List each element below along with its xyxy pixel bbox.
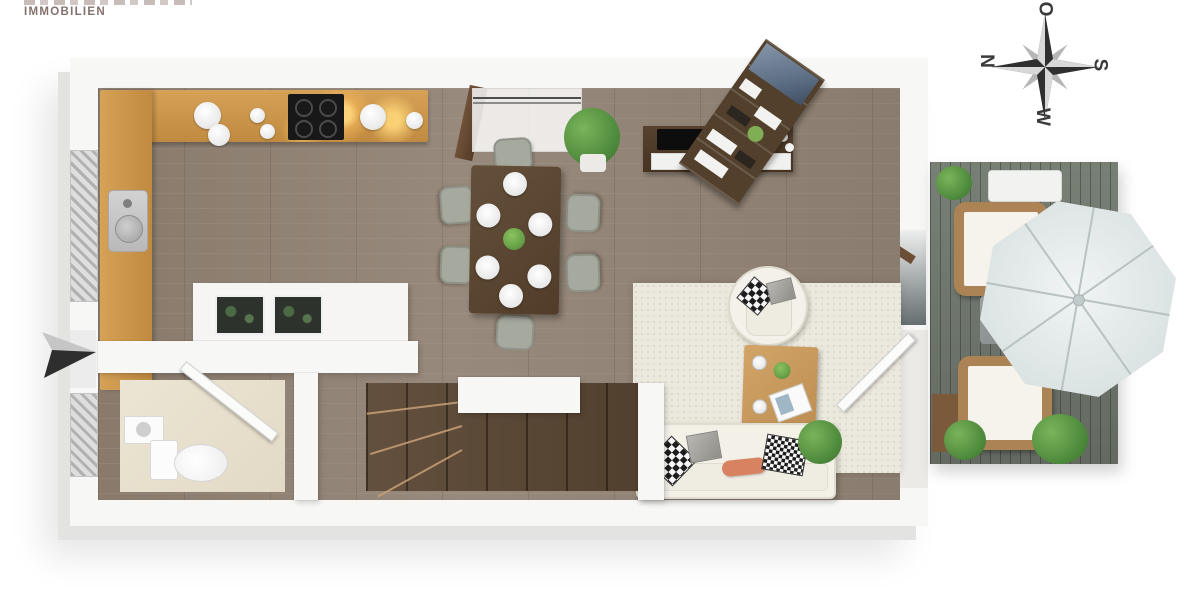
shelf-unit (679, 39, 825, 205)
outdoor-lounger (988, 170, 1062, 202)
dining-chair (565, 253, 600, 292)
interior-wall (294, 373, 318, 500)
cooktop (288, 94, 344, 140)
compass-south-label: S (1088, 59, 1110, 72)
entrance-arrow-icon (40, 322, 100, 384)
terrace-plant (936, 166, 972, 200)
island-tray (215, 295, 265, 335)
magazine (769, 383, 813, 423)
terrace-glazing (900, 230, 926, 325)
toilet (174, 444, 228, 482)
interior-wall (638, 383, 664, 500)
terrace-door-opening (900, 330, 928, 488)
kitchen-sink (108, 190, 148, 252)
company-logo-text: IMMOBILIEN (24, 6, 106, 18)
apartment-walls (70, 58, 928, 526)
bathroom-window (70, 393, 98, 477)
sink-basin (115, 215, 143, 243)
dining-table (469, 165, 562, 315)
wall-art (748, 43, 819, 106)
compass-west-label: W (1031, 108, 1053, 126)
cup (406, 112, 423, 129)
gray-pillow (686, 430, 722, 463)
armchair (728, 266, 808, 346)
bowl (260, 124, 275, 139)
kitchen-counter-top-run (138, 90, 428, 142)
terrace-plant (1032, 414, 1088, 464)
island-tray (273, 295, 323, 335)
table-centerpiece (503, 228, 525, 250)
plant-pot (580, 154, 606, 172)
staircase (366, 383, 638, 491)
stair-landing (458, 377, 580, 413)
floorplan-screenshot: { "branding": { "company_line": "IMMOBIL… (0, 0, 1200, 600)
plate-stack (208, 124, 230, 146)
bowl (360, 104, 386, 130)
terrace-deck (930, 162, 1118, 464)
wood-floor (98, 88, 900, 500)
kitchen-window (70, 150, 98, 302)
faucet (123, 199, 132, 208)
kitchen-island (193, 283, 408, 341)
compass-east-label: O (1033, 2, 1055, 17)
interior-wall (98, 341, 418, 373)
compass-north-label: N (975, 54, 997, 68)
clipped-logo-line (24, 0, 192, 5)
dining-chair (495, 315, 535, 351)
coffee-table (742, 345, 819, 428)
table-plant (773, 362, 791, 380)
floor-plant (798, 420, 842, 464)
terrace-plant (944, 420, 986, 460)
bowl (250, 108, 265, 123)
compass-rose: O S W N (975, 2, 1115, 132)
dining-chair (565, 193, 600, 232)
